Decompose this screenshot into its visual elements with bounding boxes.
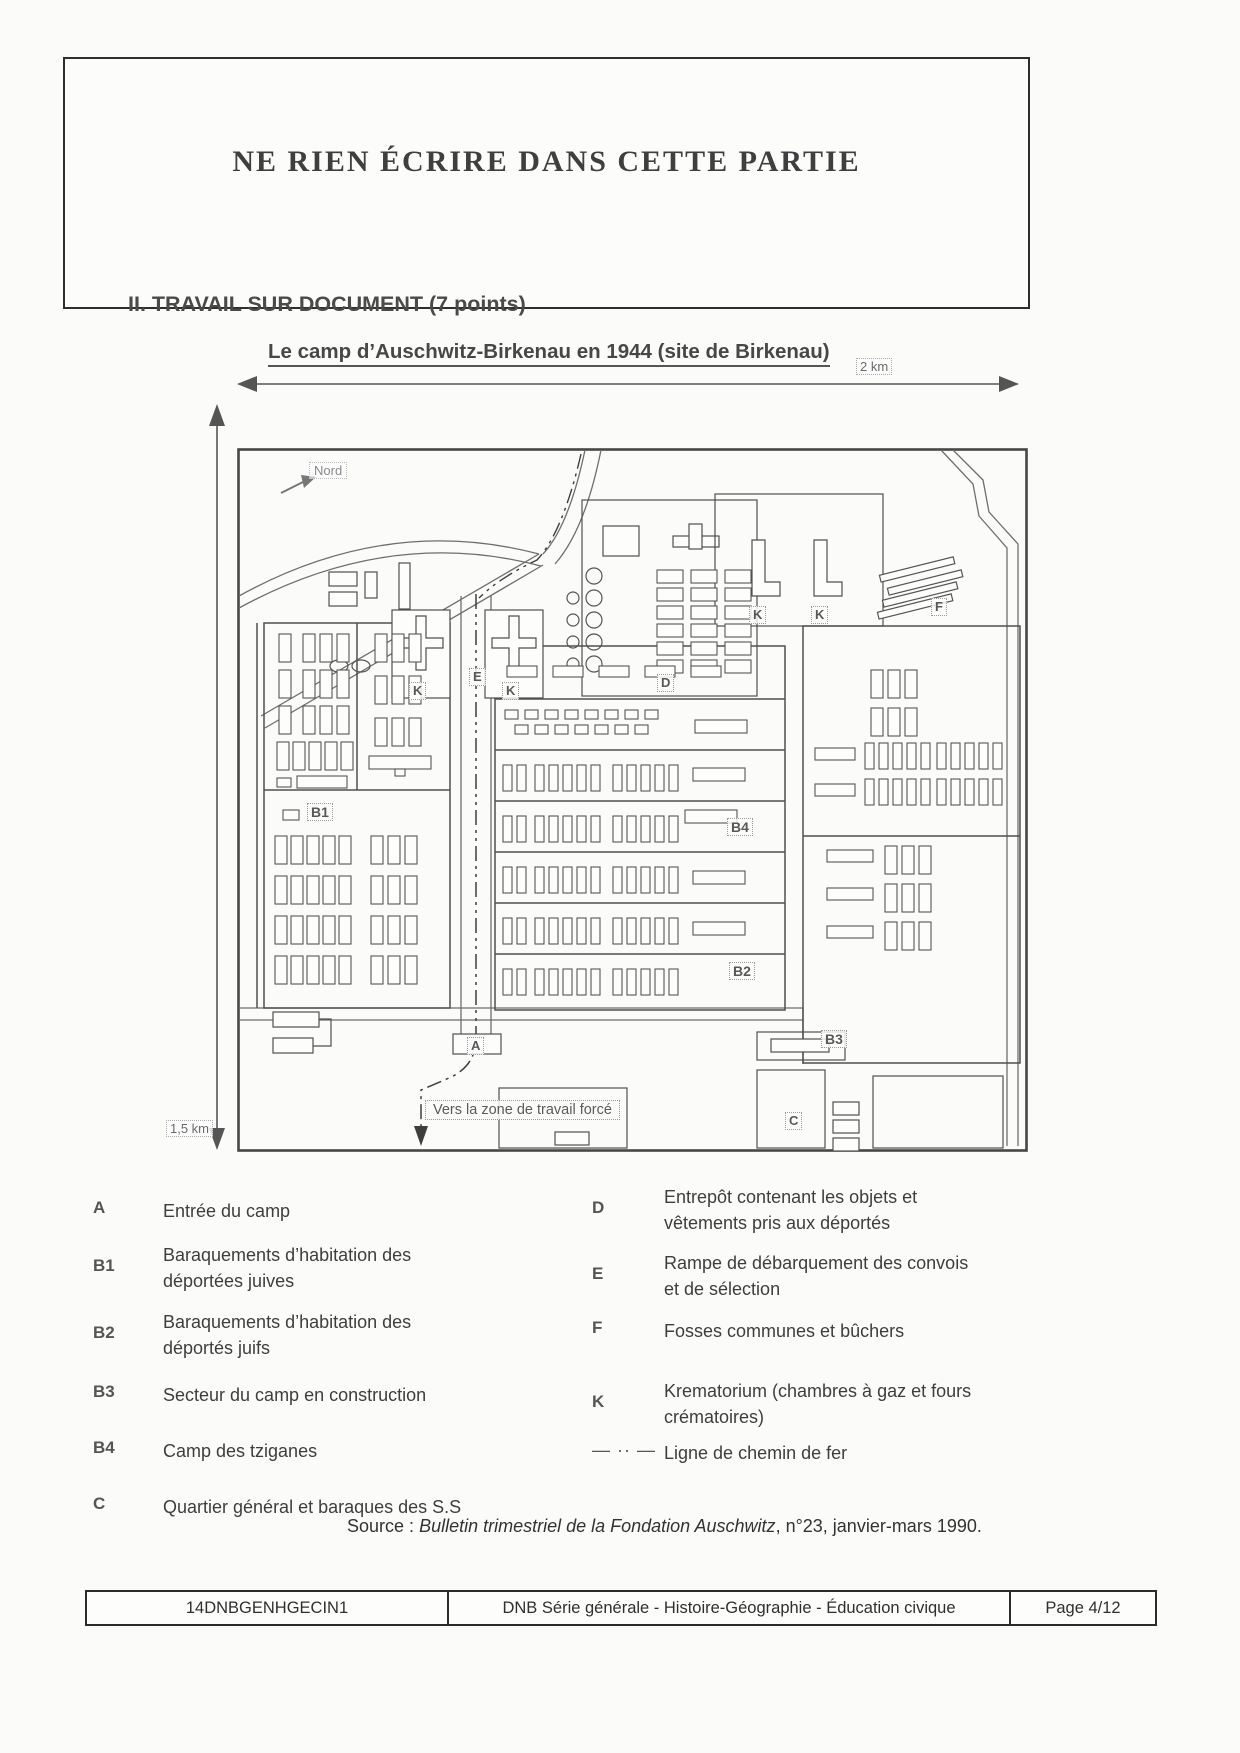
section-heading: II. TRAVAIL SUR DOCUMENT (7 points) [128,292,526,317]
legend-key: B4 [93,1438,115,1458]
footer-page-number: Page 4/12 [1011,1592,1155,1624]
legend-text: Camp des tziganes [163,1438,563,1464]
legend-text: Krematorium (chambres à gaz et fours cré… [664,1378,1104,1430]
source-line: Source : Bulletin trimestriel de la Fond… [347,1516,982,1537]
legend-key: B2 [93,1323,115,1343]
legend-text: Baraquements d’habitation des déportées … [163,1242,563,1294]
map-label-f: F [931,598,947,616]
legend-text: Entrepôt contenant les objets et vêtemen… [664,1184,1104,1236]
scale-arrow-left [204,394,230,1160]
map-label-b1: B1 [307,803,333,821]
legend-key: F [592,1318,602,1338]
footer-code: 14DNBGENHGECIN1 [87,1592,449,1624]
barracks [275,570,1002,995]
map-label-b4: B4 [727,818,753,836]
map-title: Le camp d’Auschwitz-Birkenau en 1944 (si… [268,340,830,367]
footer-table: 14DNBGENHGECIN1 DNB Série générale - His… [85,1590,1157,1626]
legend-key: K [592,1392,604,1412]
source-label: Source : [347,1516,414,1536]
camp-map: Nord K K K K E D F B1 B4 B2 B3 A C Vers … [237,448,1028,1152]
map-label-b2: B2 [729,962,755,980]
legend-text: Baraquements d’habitation des déportés j… [163,1309,563,1361]
source-suffix: , n°23, janvier-mars 1990. [776,1516,982,1536]
map-label-c: C [785,1112,802,1130]
legend-text: Ligne de chemin de fer [664,1440,1104,1466]
map-label-k: K [502,682,519,700]
scanned-exam-page: NE RIEN ÉCRIRE DANS CETTE PARTIE II. TRA… [0,0,1240,1753]
legend-key: C [93,1494,105,1514]
railway-line-symbol: — ·· — [592,1440,656,1461]
mass-grave-pyres [877,557,962,619]
forced-labour-zone-label: Vers la zone de travail forcé [425,1100,620,1120]
map-label-a: A [467,1037,484,1055]
map-label-d: D [657,674,674,692]
scale-top-label: 2 km [856,358,892,375]
legend-text: Secteur du camp en construction [163,1382,563,1408]
scale-arrow-top [225,372,1031,394]
map-label-e: E [469,668,486,686]
source-title: Bulletin trimestriel de la Fondation Aus… [419,1516,776,1536]
footer-subject: DNB Série générale - Histoire-Géographie… [449,1592,1011,1624]
map-label-b3: B3 [821,1030,847,1048]
legend-key: B3 [93,1382,115,1402]
north-label: Nord [309,462,347,479]
legend-key: D [592,1198,604,1218]
map-label-k: K [409,682,426,700]
do-not-write-text: NE RIEN ÉCRIRE DANS CETTE PARTIE [65,145,1028,179]
legend-key: E [592,1264,603,1284]
legend-key: A [93,1198,105,1218]
map-label-k: K [749,606,766,624]
legend-text: Fosses communes et bûchers [664,1318,1104,1344]
camp-map-drawing [237,448,1028,1152]
legend-text: Rampe de débarquement des convois et de … [664,1250,1104,1302]
map-label-k: K [811,606,828,624]
legend-key: B1 [93,1256,115,1276]
legend-text: Entrée du camp [163,1198,563,1224]
do-not-write-box: NE RIEN ÉCRIRE DANS CETTE PARTIE [63,57,1030,309]
scale-left-label: 1,5 km [166,1120,213,1137]
